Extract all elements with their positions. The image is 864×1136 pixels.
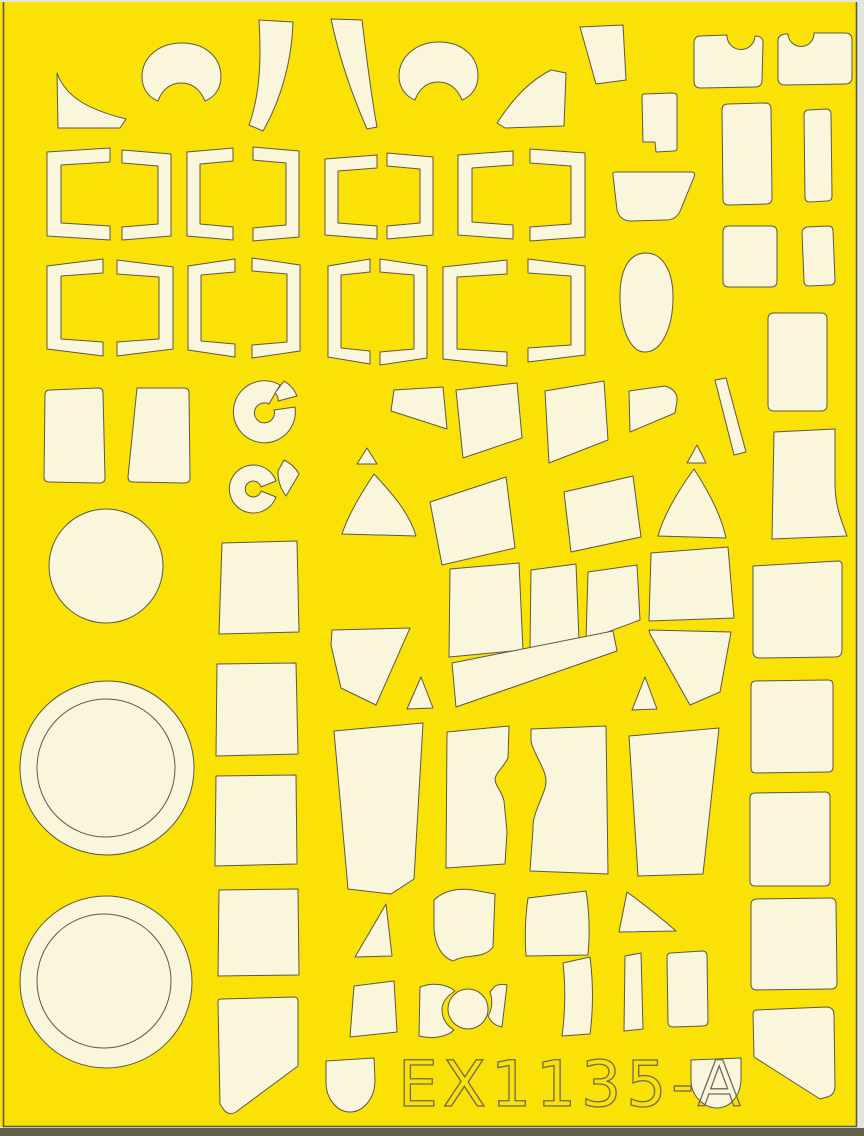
mask-square-1	[219, 541, 299, 634]
mask-square-3	[215, 775, 297, 866]
mask-narrow-rrect-2	[802, 226, 835, 286]
mask-rsq-a	[753, 561, 842, 658]
mask-quad-a	[449, 563, 523, 657]
scan-stage: EX1135-A	[0, 0, 864, 1136]
mask-rsquare-1	[723, 226, 777, 287]
mask-rsq-b	[751, 680, 833, 773]
mask-notch-rect-1	[694, 35, 763, 88]
mask-rtrap-1	[44, 388, 105, 483]
mask-notch-rect-2	[778, 33, 852, 85]
mask-curved-quad	[562, 957, 593, 1036]
mask-ring-1-outer	[20, 681, 194, 855]
mask-rsq-c	[750, 792, 830, 886]
mask-bigquad-2	[629, 728, 719, 876]
mask-quad-b2	[525, 891, 589, 956]
mask-bite-circle	[448, 989, 488, 1029]
mask-strip-vertical	[624, 953, 643, 1031]
mask-quad-b	[530, 564, 579, 648]
mask-bigquad-1	[334, 723, 423, 894]
mask-quad-b3	[350, 981, 397, 1037]
mask-tall-rrect-1	[722, 103, 772, 205]
mask-circle-small	[49, 509, 163, 623]
mask-egg	[620, 253, 673, 352]
mask-waist-2	[530, 726, 608, 874]
mask-sheet: EX1135-A	[0, 0, 864, 1136]
mask-big-rsq-br	[751, 898, 837, 990]
mask-ring-2-outer	[20, 896, 192, 1068]
mask-quad-d	[649, 547, 734, 621]
mask-narrow-rrect-1	[804, 109, 832, 202]
mask-waist-1	[446, 726, 509, 868]
mask-square-2	[216, 663, 298, 756]
mask-big-rrect-right	[768, 313, 827, 411]
mask-square-4	[218, 889, 299, 976]
sheet-code-label: EX1135-A	[398, 1048, 746, 1121]
scan-bottom-band	[0, 1128, 864, 1136]
mask-quad-b1	[434, 889, 495, 961]
mask-rtrap-2	[128, 388, 190, 483]
mask-rquad-b	[667, 951, 708, 1027]
